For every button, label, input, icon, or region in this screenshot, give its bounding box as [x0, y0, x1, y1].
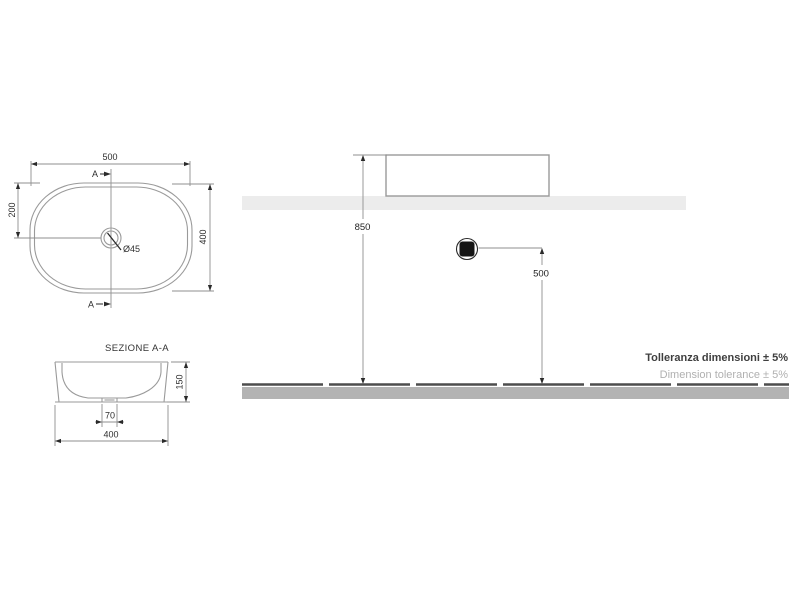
countertop-band	[242, 196, 686, 210]
arrowhead	[162, 439, 168, 443]
basin-side-profile	[386, 155, 549, 196]
plan-width-label: 500	[102, 152, 117, 162]
tolerance-note-italian: Tolleranza dimensioni ± 5%	[645, 352, 788, 364]
arrowhead	[31, 162, 37, 166]
tolerance-note-english: Dimension tolerance ± 5%	[660, 369, 789, 381]
bowl-curve	[62, 372, 161, 398]
plan-view: 500 A A 200 400 Ø45	[7, 152, 214, 310]
arrowhead	[184, 396, 188, 402]
arrowhead	[184, 362, 188, 368]
washbasin-technical-drawing: 500 A A 200 400 Ø45 SEZIONE A-A	[0, 0, 800, 600]
arrowhead	[104, 172, 111, 177]
arrowhead	[96, 420, 102, 424]
plan-height-label: 400	[198, 229, 208, 244]
arrowhead	[55, 439, 61, 443]
rim-height-label: 850	[355, 222, 371, 233]
section-width-label: 400	[103, 430, 118, 440]
section-height-label: 150	[175, 374, 185, 389]
wall-drain-square	[460, 242, 475, 257]
arrowhead	[208, 184, 212, 190]
arrowhead	[117, 420, 123, 424]
arrowhead	[540, 248, 544, 254]
arrowhead	[361, 378, 365, 384]
section-marker-a-bottom: A	[88, 300, 94, 310]
section-left-wall	[55, 362, 59, 402]
arrowhead	[540, 378, 544, 384]
section-title: SEZIONE A-A	[105, 343, 169, 354]
arrowhead	[184, 162, 190, 166]
arrowhead	[16, 183, 20, 189]
section-right-wall	[164, 362, 168, 402]
section-view: SEZIONE A-A 150 70 400	[55, 343, 190, 446]
plan-offset-label: 200	[7, 202, 17, 217]
arrowhead	[16, 232, 20, 238]
drain-diameter-label: Ø45	[123, 244, 140, 254]
section-marker-a-top: A	[92, 169, 98, 179]
arrowhead	[208, 285, 212, 291]
floor-band	[242, 387, 789, 399]
arrowhead	[361, 155, 365, 161]
section-drain-width-label: 70	[105, 411, 115, 421]
tolerance-notes: Tolleranza dimensioni ± 5% Dimension tol…	[645, 352, 788, 381]
drain-height-label: 500	[533, 269, 549, 280]
arrowhead	[104, 302, 111, 307]
